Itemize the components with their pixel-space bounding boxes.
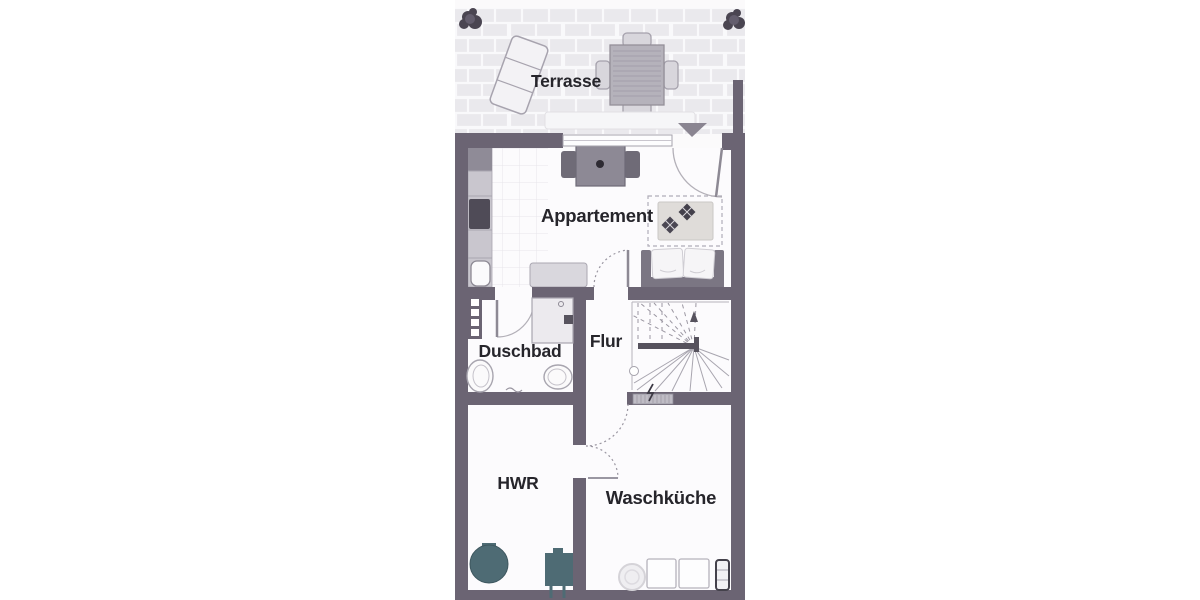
wall-hwr-stub xyxy=(573,405,586,445)
handrail-icon xyxy=(638,343,696,349)
kitchenette-icon xyxy=(468,148,492,287)
bath-shelf-icon xyxy=(468,295,482,339)
room-label-hwr: HWR xyxy=(497,473,539,493)
sliding-window-icon xyxy=(563,135,672,146)
wall-mid-c xyxy=(628,287,731,300)
room-label-waschkueche: Waschküche xyxy=(606,487,716,508)
room-label-flur: Flur xyxy=(590,331,623,351)
washbasin-icon xyxy=(467,360,493,392)
sofa-icon xyxy=(641,248,724,290)
room-label-duschbad: Duschbad xyxy=(479,341,562,361)
wall-top-right xyxy=(722,133,745,150)
rug-icon xyxy=(648,196,722,246)
wall-lower-a xyxy=(455,392,586,405)
floor-drain-icon xyxy=(619,564,645,590)
wall-hwr-lower xyxy=(573,478,586,600)
toilet-icon xyxy=(544,365,572,389)
wall-terrace-stub xyxy=(733,80,743,135)
dryer-icon xyxy=(679,559,709,588)
room-label-terrasse: Terrasse xyxy=(531,71,602,91)
floor-plan-page: Terrasse Appartement Duschbad Flur HWR W… xyxy=(0,0,1200,600)
wall-bottom xyxy=(455,590,745,600)
radiator-icon xyxy=(716,560,729,590)
floor-plan-drawing: Terrasse Appartement Duschbad Flur HWR W… xyxy=(0,0,1200,600)
wall-right xyxy=(731,133,745,600)
sideboard-icon xyxy=(530,263,587,287)
newel-post xyxy=(630,367,639,376)
door-mat xyxy=(545,112,695,129)
washing-machine-icon xyxy=(647,559,676,588)
wall-left xyxy=(455,133,468,600)
wall-top-left xyxy=(455,133,563,148)
room-label-appartement: Appartement xyxy=(541,205,653,226)
shower-icon xyxy=(532,298,573,343)
wall-bath-hall xyxy=(573,300,586,392)
